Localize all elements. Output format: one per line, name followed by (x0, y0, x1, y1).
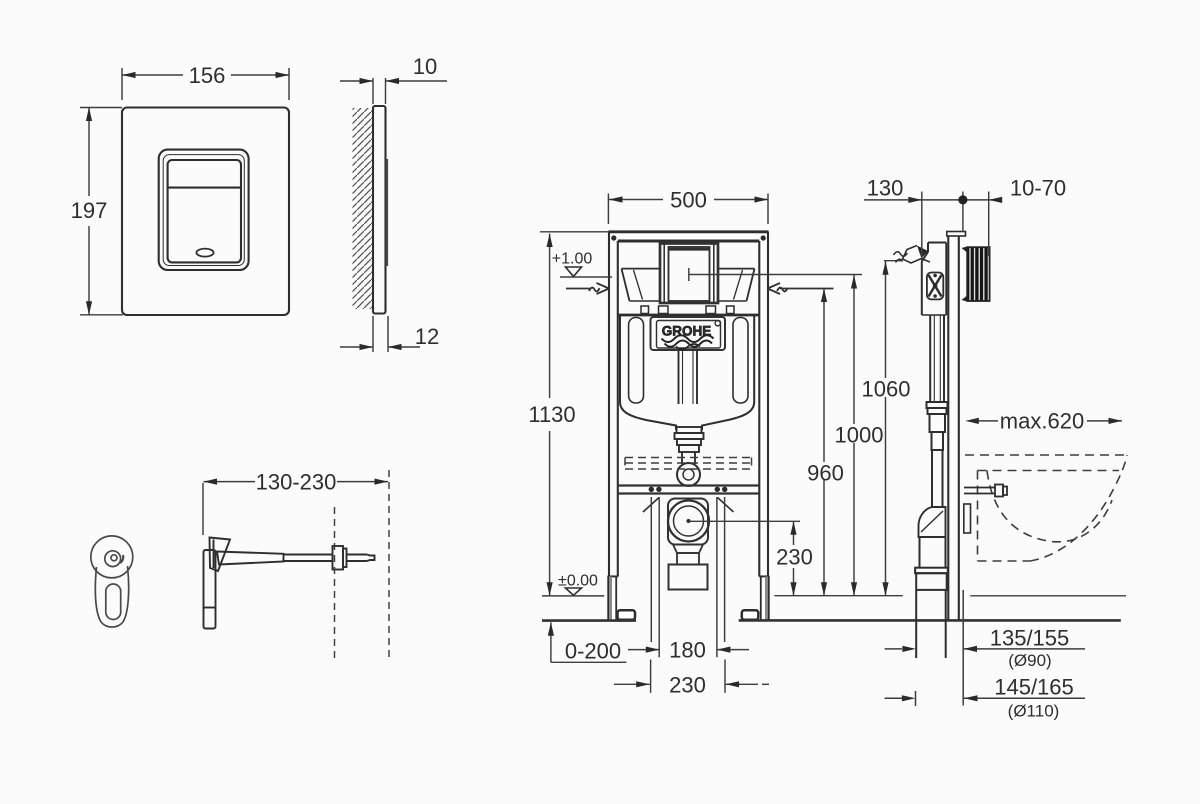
svg-text:960: 960 (807, 461, 844, 486)
svg-text:180: 180 (669, 638, 706, 663)
svg-text:1060: 1060 (862, 377, 911, 402)
svg-text:145/165: 145/165 (994, 675, 1074, 700)
svg-text:10: 10 (413, 54, 437, 79)
svg-text:+1.00: +1.00 (552, 251, 593, 268)
svg-text:10-70: 10-70 (1010, 176, 1066, 201)
svg-text:500: 500 (670, 188, 707, 213)
svg-text:(Ø110): (Ø110) (1008, 702, 1060, 721)
svg-text:±0.00: ±0.00 (558, 573, 598, 590)
svg-text:197: 197 (71, 198, 108, 223)
svg-text:1000: 1000 (835, 423, 884, 448)
svg-text:12: 12 (415, 324, 439, 349)
svg-text:130: 130 (867, 176, 904, 201)
svg-text:156: 156 (189, 63, 226, 88)
svg-text:230: 230 (669, 673, 706, 698)
svg-text:230: 230 (776, 545, 813, 570)
svg-text:130-230: 130-230 (256, 470, 337, 495)
svg-text:1130: 1130 (528, 402, 575, 427)
svg-text:0-200: 0-200 (565, 639, 621, 664)
svg-text:135/155: 135/155 (990, 626, 1070, 651)
svg-text:(Ø90): (Ø90) (1008, 651, 1051, 670)
svg-text:max.620: max.620 (1000, 409, 1084, 434)
